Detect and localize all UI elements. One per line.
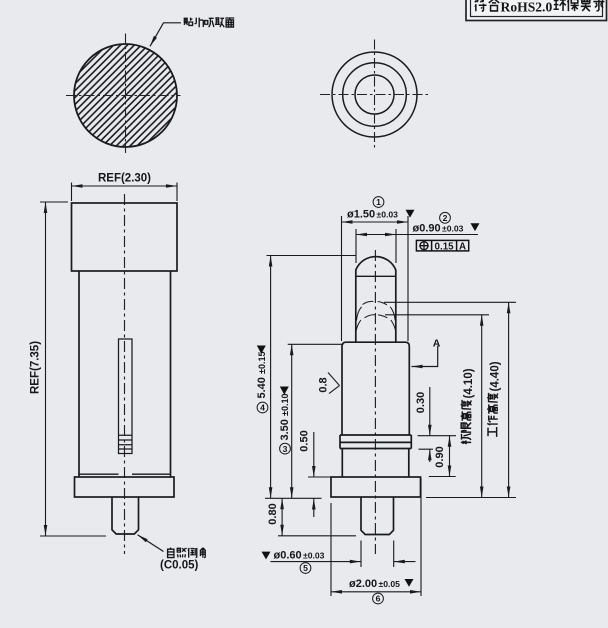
svg-text:0.15: 0.15: [435, 242, 455, 253]
svg-text:A: A: [459, 242, 466, 253]
svg-text:(C0.05): (C0.05): [160, 560, 199, 572]
svg-text:±0.05: ±0.05: [379, 579, 401, 589]
svg-text:2: 2: [443, 213, 448, 223]
svg-text:1: 1: [376, 197, 381, 207]
svg-text:5: 5: [303, 563, 308, 573]
svg-text:0.90: 0.90: [434, 446, 446, 467]
svg-text:REF(2.30): REF(2.30): [98, 173, 151, 185]
svg-text:(4.10): (4.10): [463, 368, 475, 398]
svg-text:3: 3: [283, 444, 288, 454]
svg-text:ø0.60: ø0.60: [274, 550, 302, 562]
svg-text:0.8: 0.8: [317, 377, 329, 392]
svg-text:REF(7.35): REF(7.35): [30, 341, 42, 394]
svg-text:±0.15: ±0.15: [257, 352, 267, 374]
svg-text:ø0.90: ø0.90: [413, 223, 441, 235]
svg-text:0.50: 0.50: [298, 430, 310, 451]
svg-text:4: 4: [260, 403, 265, 413]
svg-text:±0.10: ±0.10: [280, 394, 290, 416]
svg-text:A: A: [433, 338, 441, 350]
svg-text:ø2.00: ø2.00: [349, 578, 377, 590]
svg-text:ø1.50: ø1.50: [347, 209, 375, 221]
svg-text:6: 6: [376, 594, 381, 604]
svg-text:5.40: 5.40: [256, 377, 268, 398]
svg-text:±0.03: ±0.03: [377, 210, 399, 220]
svg-text:±0.03: ±0.03: [442, 224, 464, 234]
svg-text:0.80: 0.80: [267, 503, 279, 524]
svg-text:0.30: 0.30: [415, 392, 427, 413]
svg-text:±0.03: ±0.03: [303, 551, 325, 561]
svg-text:3.50: 3.50: [279, 419, 291, 440]
svg-text:(4.40): (4.40): [490, 361, 502, 391]
svg-text:RoHS2.0: RoHS2.0: [501, 0, 553, 15]
